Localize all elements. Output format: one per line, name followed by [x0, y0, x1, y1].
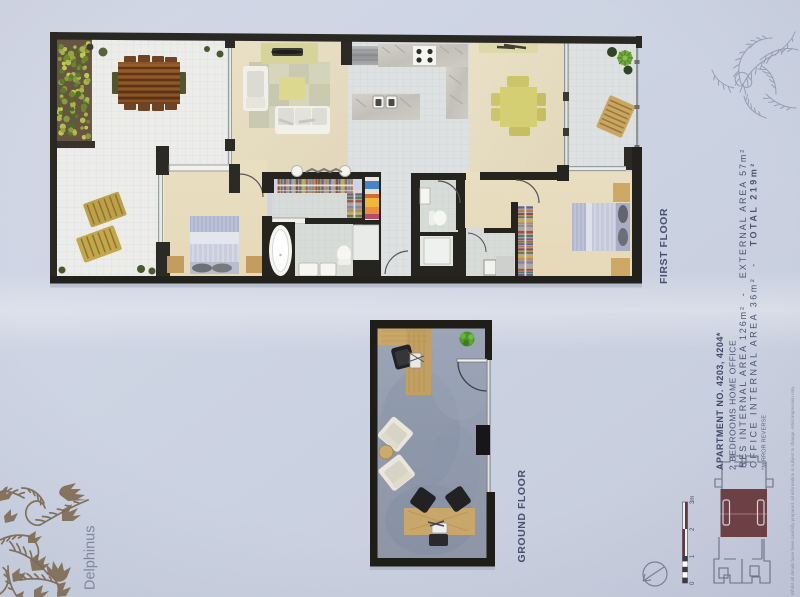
- svg-text:Whilst all details have been c: Whilst all details have been carefully p…: [790, 386, 795, 595]
- svg-text:APARTMENT NO. 4203, 4204*: APARTMENT NO. 4203, 4204*: [715, 332, 725, 470]
- svg-text:OFFICE INTERNAL AREA 36m² -: OFFICE INTERNAL AREA 36m² - TOTAL 219m²: [749, 161, 759, 468]
- svg-text:GROUND FLOOR: GROUND FLOOR: [516, 470, 528, 563]
- svg-text:2 BEDROOMS HOME OFFICE: 2 BEDROOMS HOME OFFICE: [728, 340, 738, 470]
- svg-text:RES INTERNAL AREA 126m² - E: RES INTERNAL AREA 126m² - EXTERNAL AREA …: [738, 148, 748, 468]
- svg-text:Delphinus: Delphinus: [83, 526, 99, 591]
- svg-text:3m: 3m: [690, 496, 696, 504]
- svg-text:FIRST FLOOR: FIRST FLOOR: [658, 208, 670, 284]
